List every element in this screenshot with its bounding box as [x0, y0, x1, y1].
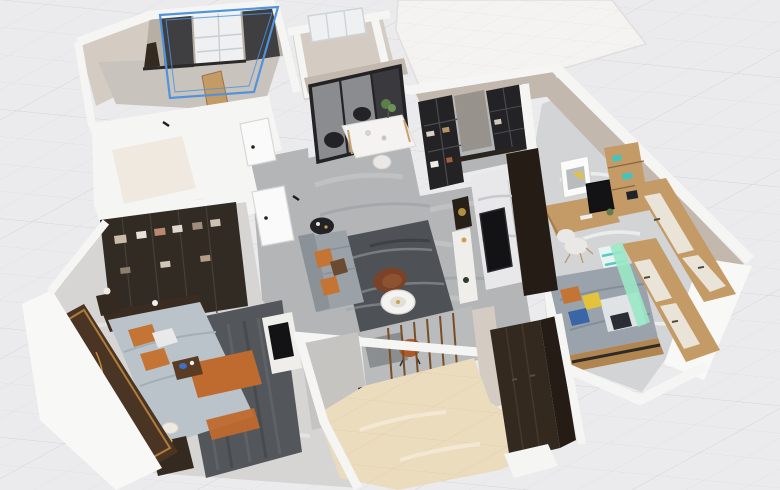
plant	[463, 277, 469, 283]
design-canvas[interactable]	[0, 0, 780, 490]
round-coffee-table[interactable]	[381, 290, 415, 314]
blue-bowl	[179, 363, 187, 369]
gold-vase	[462, 238, 467, 243]
teapot	[152, 300, 158, 306]
door-handle	[251, 145, 255, 149]
floor-plan-3d-scene[interactable]	[0, 0, 780, 490]
gold-disc	[458, 208, 466, 216]
door-handle	[264, 216, 268, 220]
bowl	[365, 130, 371, 136]
bottle	[324, 225, 327, 228]
desk-plant	[607, 209, 614, 216]
black-side-table[interactable]	[310, 218, 334, 235]
cabinet-item	[446, 157, 453, 163]
black-chair[interactable]	[324, 132, 344, 148]
teacup	[190, 361, 194, 365]
white-chair[interactable]	[373, 155, 391, 169]
black-chair[interactable]	[353, 107, 371, 121]
bowl	[382, 136, 387, 141]
bottle	[316, 222, 320, 226]
